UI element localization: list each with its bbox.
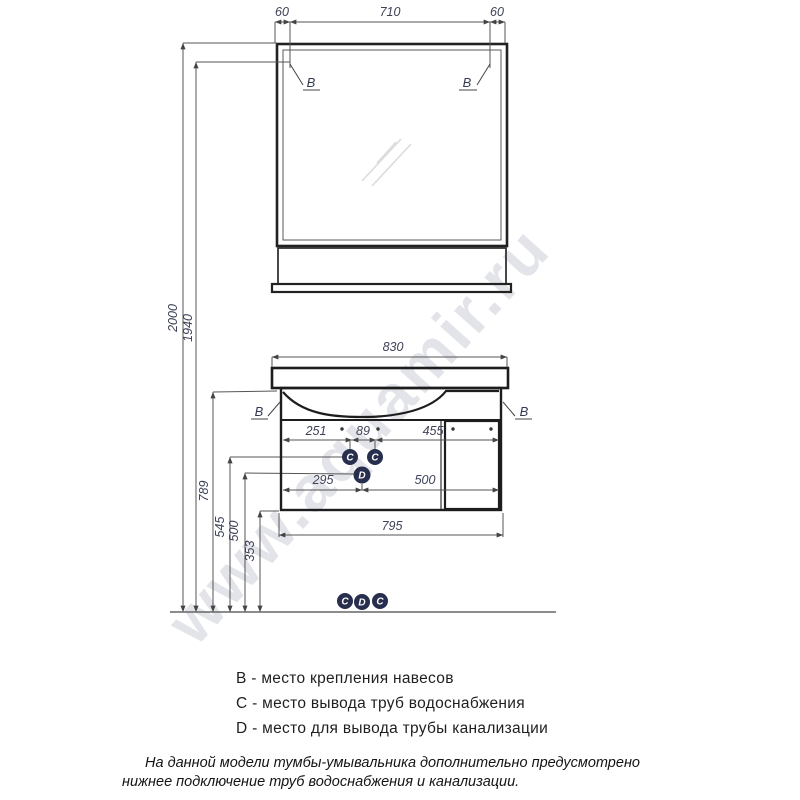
drain-port-label: D	[358, 471, 365, 482]
dim-row2-right: 500	[415, 473, 436, 487]
mirror-hook-label-left: B	[307, 75, 316, 90]
floor-port-right-label: C	[376, 597, 384, 608]
cabinet-right-door	[445, 421, 499, 509]
mirror-hook-label-right: B	[463, 75, 472, 90]
mirror-glass-reflection	[362, 139, 411, 186]
dim-height-hooks: 1940	[181, 314, 195, 342]
dim-height-counter: 789	[197, 481, 211, 502]
dim-mirror-left-offset: 60	[275, 5, 289, 19]
technical-drawing-page: www.aquamir.ru 60 710 60 B B	[0, 0, 800, 800]
legend: B - место крепления навесов C - место вы…	[236, 666, 548, 741]
dim-height-bottom: 353	[243, 541, 257, 562]
legend-item-hooks: B - место крепления навесов	[236, 666, 548, 691]
supply-port-right-label: C	[371, 453, 379, 464]
dim-cabinet-bottom-width: 795	[382, 519, 403, 533]
dim-row1-left: 251	[305, 424, 327, 438]
dim-height-supply: 545	[213, 517, 227, 538]
legend-item-sewage: D - место для вывода трубы канализации	[236, 716, 548, 741]
dim-height-drain: 500	[227, 521, 241, 542]
floor-pipe-ports: C D C	[337, 593, 388, 610]
legend-item-water-supply: C - место вывода труб водоснабжения	[236, 691, 548, 716]
supply-port-left-label: C	[346, 453, 354, 464]
footnote-line-1: На данной модели тумбы-умывальника допол…	[145, 755, 640, 771]
mirror-hook-leaders	[290, 64, 490, 90]
dim-height-total: 2000	[166, 304, 180, 333]
dim-cabinet-top-width: 830	[383, 340, 404, 354]
floor-port-left-label: C	[341, 597, 349, 608]
floor-port-center-label: D	[358, 598, 365, 609]
dim-mirror-span: 710	[380, 5, 401, 19]
dim-row2-left: 295	[312, 473, 334, 487]
cabinet-hook-label-right: B	[520, 404, 529, 419]
dim-row1-center: 89	[356, 424, 370, 438]
footnote-line-2: нижнее подключение труб водоснабжения и …	[122, 774, 519, 790]
cabinet-hook-label-left: B	[255, 404, 264, 419]
dim-mirror-right-offset: 60	[490, 5, 504, 19]
dim-row1-right: 455	[423, 424, 444, 438]
